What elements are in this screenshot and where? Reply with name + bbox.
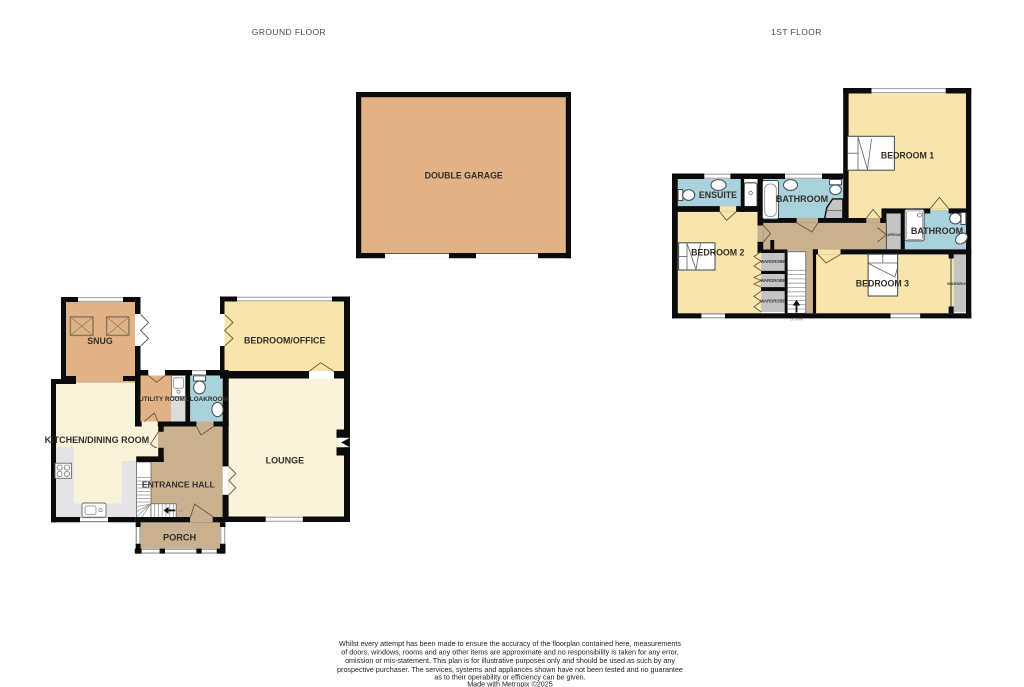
svg-text:UP: UP: [178, 508, 184, 513]
svg-text:Made with Metropix ©2025: Made with Metropix ©2025: [467, 679, 553, 687]
svg-text:WARDROBE: WARDROBE: [760, 299, 785, 304]
svg-text:BEDROOM 3: BEDROOM 3: [856, 278, 909, 288]
svg-text:PORCH: PORCH: [163, 532, 197, 542]
svg-text:BEDROOM 2: BEDROOM 2: [691, 248, 744, 258]
svg-text:SNUG: SNUG: [87, 336, 113, 346]
svg-text:ENTRANCE HALL: ENTRANCE HALL: [142, 480, 215, 490]
svg-text:BATHROOM: BATHROOM: [776, 194, 828, 204]
svg-text:KITCHEN/DINING ROOM: KITCHEN/DINING ROOM: [45, 435, 150, 445]
svg-text:GROUND FLOOR: GROUND FLOOR: [252, 27, 326, 37]
svg-text:BEDROOM/OFFICE: BEDROOM/OFFICE: [244, 335, 325, 345]
svg-text:BEDROOM 1: BEDROOM 1: [881, 151, 934, 161]
svg-text:WARDROBE: WARDROBE: [760, 259, 785, 264]
svg-text:ENSUITE: ENSUITE: [699, 190, 737, 200]
svg-text:UTILITY ROOM: UTILITY ROOM: [139, 396, 185, 403]
svg-text:CLOAKROOM: CLOAKROOM: [185, 396, 228, 403]
svg-text:DOUBLE GARAGE: DOUBLE GARAGE: [425, 170, 503, 180]
svg-text:WARDROBE: WARDROBE: [760, 278, 785, 283]
svg-text:BATHROOM: BATHROOM: [911, 226, 963, 236]
svg-text:1ST FLOOR: 1ST FLOOR: [771, 27, 822, 37]
svg-text:LOUNGE: LOUNGE: [266, 455, 305, 465]
